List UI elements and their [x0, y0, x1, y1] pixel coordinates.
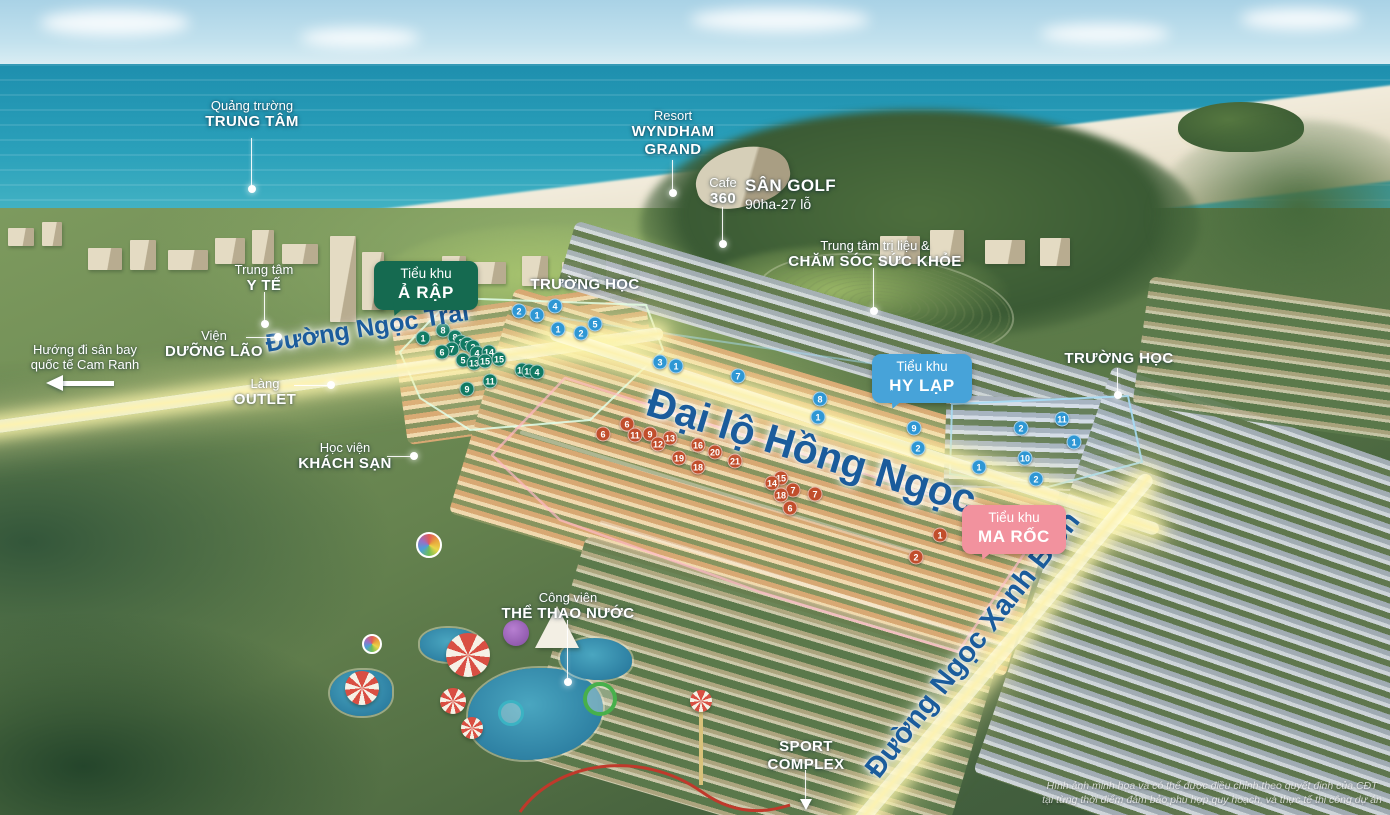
- leader-dot: [870, 307, 878, 315]
- airport-arrow-icon: [46, 375, 63, 391]
- lot-marker-greek: 4: [548, 299, 563, 314]
- lot-marker-greek: 2: [911, 441, 926, 456]
- leader-line: [873, 268, 874, 308]
- lot-marker-morocco: 12: [651, 437, 666, 452]
- label-line: SÂN GOLF: [745, 176, 865, 196]
- label-line: DƯỠNG LÃO: [154, 343, 274, 361]
- label-line: Viện: [154, 328, 274, 343]
- zone-badge-morocco: Tiểu khu MA RỐC: [962, 505, 1066, 554]
- lot-marker-arab: 6: [435, 345, 450, 360]
- lot-marker-greek: 7: [731, 369, 746, 384]
- lot-marker-greek: 2: [1029, 472, 1044, 487]
- leader-line: [246, 337, 276, 338]
- leader-line: [567, 620, 568, 680]
- leader-dot: [564, 678, 572, 686]
- lot-marker-morocco: 6: [596, 427, 611, 442]
- label-line: COMPLEX: [756, 756, 856, 774]
- lot-marker-arab: 15: [478, 354, 493, 369]
- masterplan-render: 1882327641451315151011411921415231781921…: [0, 0, 1390, 815]
- lot-marker-greek: 2: [574, 326, 589, 341]
- leader-line: [722, 207, 723, 241]
- disclaimer-line: Hình ảnh minh họa và có thể được điều ch…: [1042, 779, 1382, 793]
- label-wellness-center: Trung tâm trị liệu & CHĂM SÓC SỨC KHỎE: [775, 238, 975, 271]
- zone-badge-subtitle: Tiểu khu: [384, 267, 468, 282]
- label-school-east: TRƯỜNG HỌC: [1059, 350, 1179, 368]
- label-line: KHÁCH SẠN: [275, 455, 415, 473]
- leader-dot: [719, 240, 727, 248]
- lot-marker-morocco: 19: [672, 451, 687, 466]
- lot-marker-morocco: 2: [909, 550, 924, 565]
- leader-line: [264, 292, 265, 322]
- label-line: Hướng đi sân bay: [10, 342, 160, 357]
- lot-marker-morocco: 21: [728, 454, 743, 469]
- lot-marker-greek: 1: [811, 410, 826, 425]
- label-line: quốc tế Cam Ranh: [10, 357, 160, 372]
- sport-complex-arrow-icon: [800, 799, 812, 810]
- label-central-square: Quảng trường TRUNG TÂM: [167, 98, 337, 131]
- zone-badge-title: MA RỐC: [972, 526, 1056, 547]
- leader-dot: [669, 189, 677, 197]
- label-line: Học viện: [275, 440, 415, 455]
- label-line: Công viên: [488, 590, 648, 605]
- lot-marker-arab: 9: [460, 382, 475, 397]
- airport-arrow-shaft: [62, 381, 114, 386]
- label-school-west: TRƯỜNG HỌC: [525, 276, 645, 294]
- zone-badge-arab: Tiểu khu Ả RẬP: [374, 261, 478, 310]
- label-line: TRUNG TÂM: [167, 113, 337, 131]
- label-line: CHĂM SÓC SỨC KHỎE: [775, 253, 975, 271]
- leader-dot: [410, 452, 418, 460]
- lot-marker-greek: 9: [907, 421, 922, 436]
- leader-dot: [327, 381, 335, 389]
- leader-line: [251, 138, 252, 188]
- label-airport-direction: Hướng đi sân bay quốc tế Cam Ranh: [10, 342, 160, 373]
- zone-badge-subtitle: Tiểu khu: [882, 360, 962, 375]
- lot-marker-morocco: 7: [808, 487, 823, 502]
- leader-dot: [274, 333, 282, 341]
- disclaimer: Hình ảnh minh họa và có thể được điều ch…: [1042, 779, 1382, 807]
- leader-dot: [261, 320, 269, 328]
- label-line: Quảng trường: [167, 98, 337, 113]
- label-line: SPORT: [756, 738, 856, 756]
- leader-dot: [248, 185, 256, 193]
- label-sport-complex: SPORT COMPLEX: [756, 738, 856, 773]
- lot-marker-greek: 11: [1055, 412, 1070, 427]
- lot-marker-greek: 1: [551, 322, 566, 337]
- label-line: OUTLET: [215, 391, 315, 409]
- label-line: Trung tâm: [214, 262, 314, 277]
- label-nursing-home: Viện DƯỠNG LÃO: [154, 328, 274, 361]
- lot-marker-greek: 1: [972, 460, 987, 475]
- lot-marker-greek: 5: [588, 317, 603, 332]
- lot-marker-greek: 1: [669, 359, 684, 374]
- label-outlet-village: Làng OUTLET: [215, 376, 315, 409]
- label-line: Làng: [215, 376, 315, 391]
- zone-badge-title: Ả RẬP: [384, 282, 468, 303]
- lot-marker-greek: 3: [653, 355, 668, 370]
- label-line: THỂ THAO NƯỚC: [488, 605, 648, 623]
- label-line: WYNDHAM: [598, 123, 748, 141]
- disclaimer-line: tại từng thời điểm đảm bảo phù hợp quy h…: [1042, 793, 1382, 807]
- lot-marker-greek: 2: [512, 304, 527, 319]
- lot-marker-arab: 4: [530, 365, 545, 380]
- label-wyndham-resort: Resort WYNDHAM GRAND: [598, 108, 748, 159]
- leader-line: [672, 160, 673, 190]
- zone-badge-subtitle: Tiểu khu: [972, 511, 1056, 526]
- lot-marker-morocco: 11: [628, 428, 643, 443]
- lot-marker-morocco: 1: [933, 528, 948, 543]
- lot-marker-morocco: 6: [783, 501, 798, 516]
- leader-line: [805, 770, 806, 800]
- lot-marker-greek: 1: [1067, 435, 1082, 450]
- lot-marker-greek: 10: [1018, 451, 1033, 466]
- lot-marker-arab: 15: [492, 352, 507, 367]
- leader-line: [387, 456, 411, 457]
- label-medical-center: Trung tâm Y TẾ: [214, 262, 314, 295]
- label-line: Trung tâm trị liệu &: [775, 238, 975, 253]
- label-line: GRAND: [598, 141, 748, 159]
- label-water-park: Công viên THỂ THAO NƯỚC: [488, 590, 648, 623]
- label-line: Resort: [598, 108, 748, 123]
- zone-badge-greek: Tiểu khu HY LẠP: [872, 354, 972, 403]
- zone-badge-title: HY LẠP: [882, 375, 962, 396]
- lot-marker-arab: 11: [483, 374, 498, 389]
- label-line: 90ha-27 lỗ: [745, 196, 865, 213]
- lot-marker-greek: 8: [813, 392, 828, 407]
- lot-marker-morocco: 18: [691, 460, 706, 475]
- leader-dot: [1114, 391, 1122, 399]
- lot-marker-greek: 2: [1014, 421, 1029, 436]
- leader-line: [1117, 368, 1118, 392]
- lot-marker-greek: 1: [530, 308, 545, 323]
- label-golf: SÂN GOLF 90ha-27 lỗ: [745, 176, 865, 213]
- leader-line: [294, 385, 328, 386]
